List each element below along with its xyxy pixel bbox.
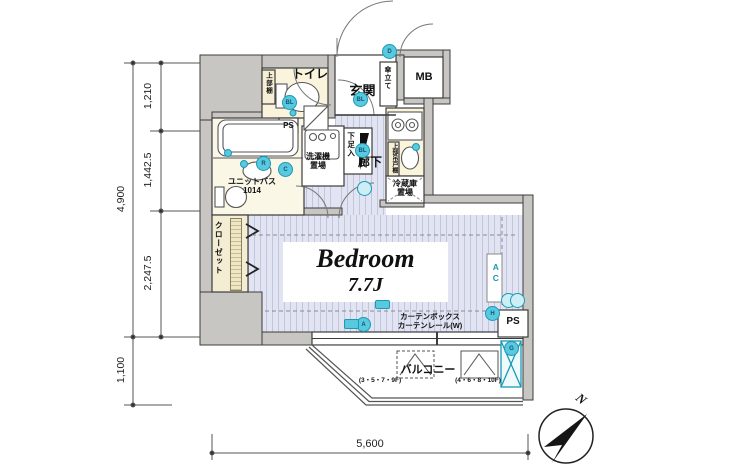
dim-left-mid: 1,442.5 [142, 135, 154, 205]
marker-entrance-bl: BL [353, 92, 368, 107]
balcony-floors-right-label: (4・6・8・10F) [448, 377, 508, 384]
bedroom-size-label: 7.7J [283, 274, 448, 297]
dim-bottom: 5,600 [330, 438, 410, 450]
bedroom-name-label: Bedroom [283, 244, 448, 274]
balcony-label: バルコニー [390, 364, 466, 377]
balcony-floors-left-label: (3・5・7・9F) [350, 377, 410, 384]
dim-left-top: 1,210 [142, 66, 154, 126]
toilet-shelf-label: 上部棚 [264, 72, 271, 95]
floor-plan: トイレ 玄関 MB PS 洗濯機 置場 下足入 廊下 冷蔵庫 置場 ユニットバス… [0, 0, 730, 470]
stove-icon [388, 112, 422, 140]
wall-kitchen-right [424, 98, 433, 203]
shoe-cabinet-label: 下足入 [346, 132, 355, 158]
marker-toilet-bl: BL [282, 95, 297, 110]
sink-faucet-icon [413, 144, 420, 151]
toilet-counter-icon [304, 106, 328, 130]
laundry-label: 洗濯機 置場 [298, 152, 338, 170]
umbrella-stand-label: 傘立て [383, 66, 391, 90]
marker-bedroom-fan-2 [510, 293, 525, 308]
fridge-label-line1: 冷蔵庫 [386, 179, 424, 188]
toilet-label: トイレ [285, 68, 335, 82]
marker-bath-c: C [278, 162, 293, 177]
pipe-space-top-label: PS [279, 121, 298, 130]
wall-bottomleft-block [200, 292, 262, 345]
kitchen-shelf-label: 上部吊戸棚 [390, 143, 397, 173]
meter-box-label: MB [410, 71, 438, 84]
laundry-label-line1: 洗濯機 [298, 152, 338, 161]
wall-step [424, 195, 533, 203]
wall-mb-right [443, 50, 450, 100]
corridor-label: 廊下 [350, 156, 390, 170]
laundry-label-line2: 置場 [298, 161, 338, 170]
dim-left-bottom: 2,247.5 [142, 238, 154, 308]
unit-bath-label: ユニットバス 1014 [216, 177, 288, 195]
fridge-label: 冷蔵庫 置場 [386, 179, 424, 197]
marker-corridor-bl: BL [355, 143, 370, 158]
wall-toilet-entrance [328, 55, 335, 118]
closet-label: クローゼット [214, 221, 223, 275]
closet-hanger-band [230, 218, 242, 291]
marker-bedroom-pill [344, 319, 359, 329]
dim-left-total: 4,900 [115, 169, 127, 229]
fridge-label-line2: 置場 [386, 188, 424, 197]
pipe-space-bottom-label: PS [498, 316, 528, 328]
compass-icon [539, 409, 593, 463]
marker-bedroom-h: H [485, 306, 500, 321]
ac-label: AC [490, 262, 500, 284]
unit-bath-label-line1: ユニットバス [216, 177, 288, 186]
dim-lower: 1,100 [115, 340, 127, 400]
plan-drawing [0, 0, 730, 470]
marker-entrance-door: D [382, 44, 397, 59]
marker-balcony-g: G [504, 341, 519, 356]
marker-bedroom-pill-2 [375, 300, 390, 309]
toilet-washlet-icon [290, 110, 296, 116]
wall-topleft-block [200, 55, 262, 120]
marker-bath-r: R [256, 156, 271, 171]
curtain-rail-label: カーテンレール(W) [360, 322, 500, 331]
basin-faucet-icon [241, 161, 248, 168]
tub-faucet-icon [225, 150, 232, 157]
unit-bath-label-line2: 1014 [216, 186, 288, 195]
marker-corridor-extra [357, 181, 372, 196]
